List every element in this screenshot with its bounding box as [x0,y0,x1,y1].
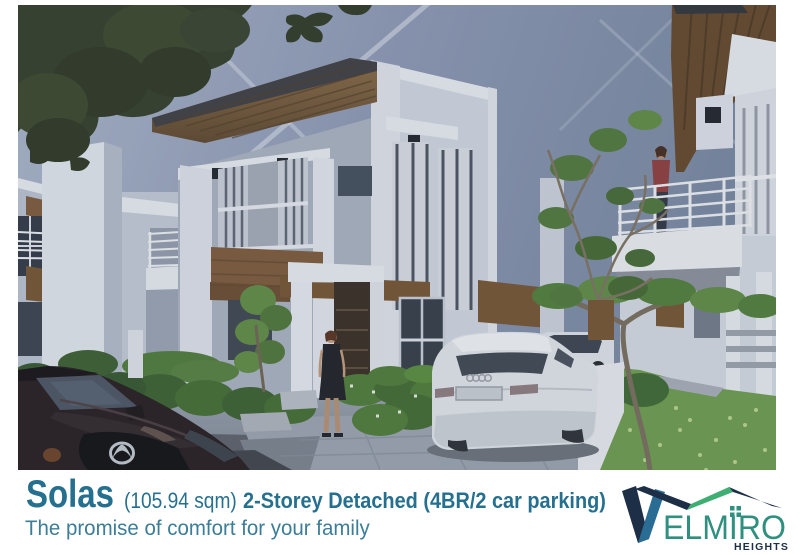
svg-text:HEIGHTS: HEIGHTS [734,541,789,553]
